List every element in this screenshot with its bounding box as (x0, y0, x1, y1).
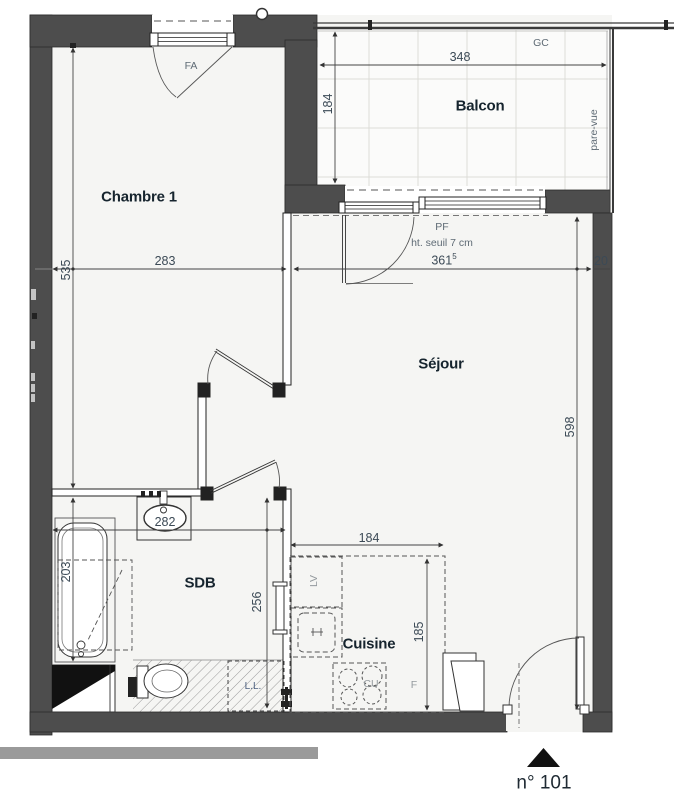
annotation-washing-machine: L.L. (245, 682, 262, 692)
dim-living-width-sup: 5 (452, 252, 456, 261)
technical-shaft (52, 665, 115, 712)
dim-bathtub-length: 203 (60, 562, 73, 583)
entrance-arrow-icon (527, 748, 560, 767)
dim-bedroom-length: 535 (60, 260, 73, 281)
dim-living-length: 598 (564, 417, 577, 438)
floor-plan-drawing (0, 0, 674, 800)
room-label-living: Séjour (418, 357, 463, 372)
annotation-threshold: ht. seuil 7 cm (411, 238, 473, 249)
annotation-fridge: F (411, 680, 417, 691)
room-label-balcony: Balcon (456, 99, 505, 114)
room-label-bathroom: SDB (184, 576, 215, 591)
dim-kitchen-width: 184 (359, 532, 380, 545)
dim-bathroom-length: 256 (251, 592, 264, 613)
annotation-front-window: FA (185, 61, 198, 72)
annotation-french-window: PF (435, 222, 448, 233)
annotation-cooktop: CU (363, 679, 378, 690)
dim-balcony-width: 348 (450, 51, 471, 64)
dim-bedroom-width: 283 (155, 255, 176, 268)
room-label-kitchen: Cuisine (343, 637, 396, 652)
floor-plan: Chambre 1 Balcon Séjour SDB Cuisine FA G… (0, 0, 674, 800)
entry-cabinet (443, 653, 484, 711)
dim-living-width: 3615 (431, 253, 456, 267)
dim-kitchen-depth: 185 (413, 622, 426, 643)
dim-balcony-depth: 184 (322, 94, 335, 115)
toilet (128, 664, 188, 698)
dim-wall-thickness: 20 (594, 255, 608, 268)
dim-living-width-value: 361 (431, 253, 452, 267)
dim-bathroom-width: 282 (155, 516, 176, 529)
room-label-bedroom: Chambre 1 (101, 190, 177, 205)
annotation-privacy-screen: pare-vue (589, 109, 600, 150)
annotation-dishwasher: LV (309, 575, 320, 587)
unit-number: n° 101 (516, 774, 571, 793)
annotation-gc: GC (533, 38, 549, 49)
